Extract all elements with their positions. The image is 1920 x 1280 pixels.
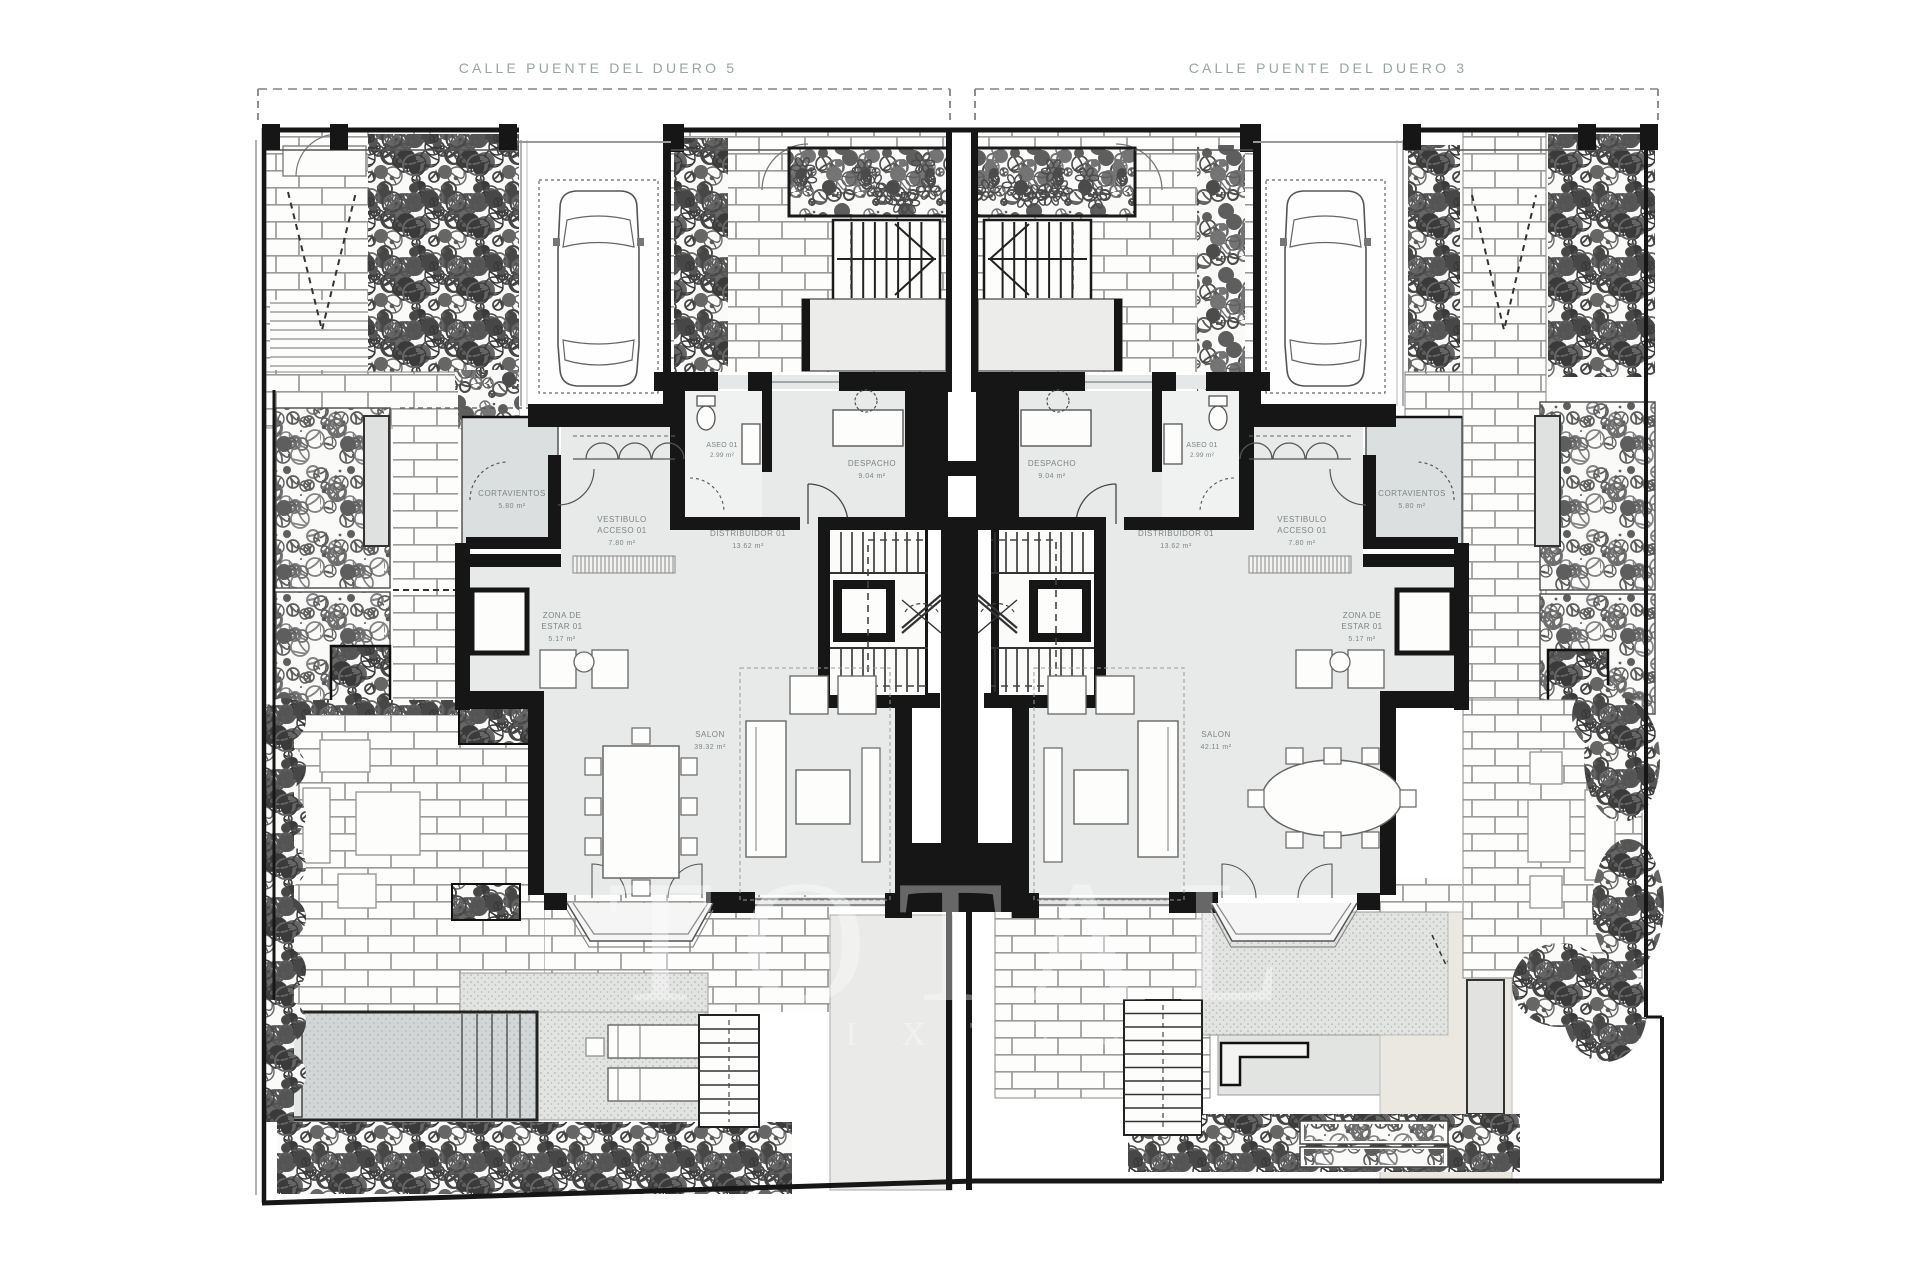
- svg-text:ASEO 01: ASEO 01: [1186, 442, 1217, 449]
- svg-text:ESTAR 01: ESTAR 01: [1341, 622, 1382, 631]
- svg-text:DESPACHO: DESPACHO: [848, 459, 896, 468]
- svg-text:5.80 m²: 5.80 m²: [1398, 503, 1425, 510]
- svg-text:9.04 m²: 9.04 m²: [858, 473, 885, 480]
- svg-text:CORTAVIENTOS: CORTAVIENTOS: [1378, 489, 1446, 498]
- svg-text:13.62 m²: 13.62 m²: [1160, 543, 1192, 550]
- svg-text:5.17 m²: 5.17 m²: [548, 636, 575, 643]
- svg-text:CALLE PUENTE DEL DUERO 5: CALLE PUENTE DEL DUERO 5: [459, 60, 738, 76]
- svg-text:5.17 m²: 5.17 m²: [1348, 636, 1375, 643]
- svg-text:CORTAVIENTOS: CORTAVIENTOS: [478, 489, 546, 498]
- svg-text:ACCESO 01: ACCESO 01: [1277, 526, 1326, 535]
- svg-text:5.80 m²: 5.80 m²: [498, 503, 525, 510]
- svg-text:42.11 m²: 42.11 m²: [1200, 744, 1231, 751]
- svg-text:ASEO 01: ASEO 01: [706, 442, 737, 449]
- svg-text:ZONA DE: ZONA DE: [543, 611, 582, 620]
- svg-text:DESPACHO: DESPACHO: [1028, 459, 1076, 468]
- svg-text:2.99 m²: 2.99 m²: [710, 452, 735, 459]
- svg-text:ESTAR 01: ESTAR 01: [541, 622, 582, 631]
- svg-text:2.99 m²: 2.99 m²: [1190, 452, 1215, 459]
- svg-text:S I X T Y S: S I X T Y S: [782, 1016, 1138, 1053]
- svg-text:SALON: SALON: [695, 730, 725, 739]
- svg-text:VESTIBULO: VESTIBULO: [1277, 515, 1326, 524]
- svg-text:ACCESO 01: ACCESO 01: [597, 526, 646, 535]
- svg-text:7.80 m²: 7.80 m²: [608, 540, 635, 547]
- svg-text:VESTIBULO: VESTIBULO: [597, 515, 646, 524]
- svg-text:TOTAL: TOTAL: [607, 844, 1313, 1038]
- svg-text:7.80 m²: 7.80 m²: [1288, 540, 1315, 547]
- svg-text:39.32 m²: 39.32 m²: [694, 744, 726, 751]
- svg-text:DISTRIBUIDOR 01: DISTRIBUIDOR 01: [1138, 529, 1214, 538]
- svg-text:9.04 m²: 9.04 m²: [1038, 473, 1065, 480]
- svg-text:ZONA DE: ZONA DE: [1343, 611, 1382, 620]
- svg-text:SALON: SALON: [1201, 730, 1231, 739]
- svg-text:DISTRIBUIDOR 01: DISTRIBUIDOR 01: [710, 529, 786, 538]
- svg-text:13.62 m²: 13.62 m²: [732, 543, 764, 550]
- svg-text:CALLE PUENTE DEL DUERO 3: CALLE PUENTE DEL DUERO 3: [1189, 60, 1468, 76]
